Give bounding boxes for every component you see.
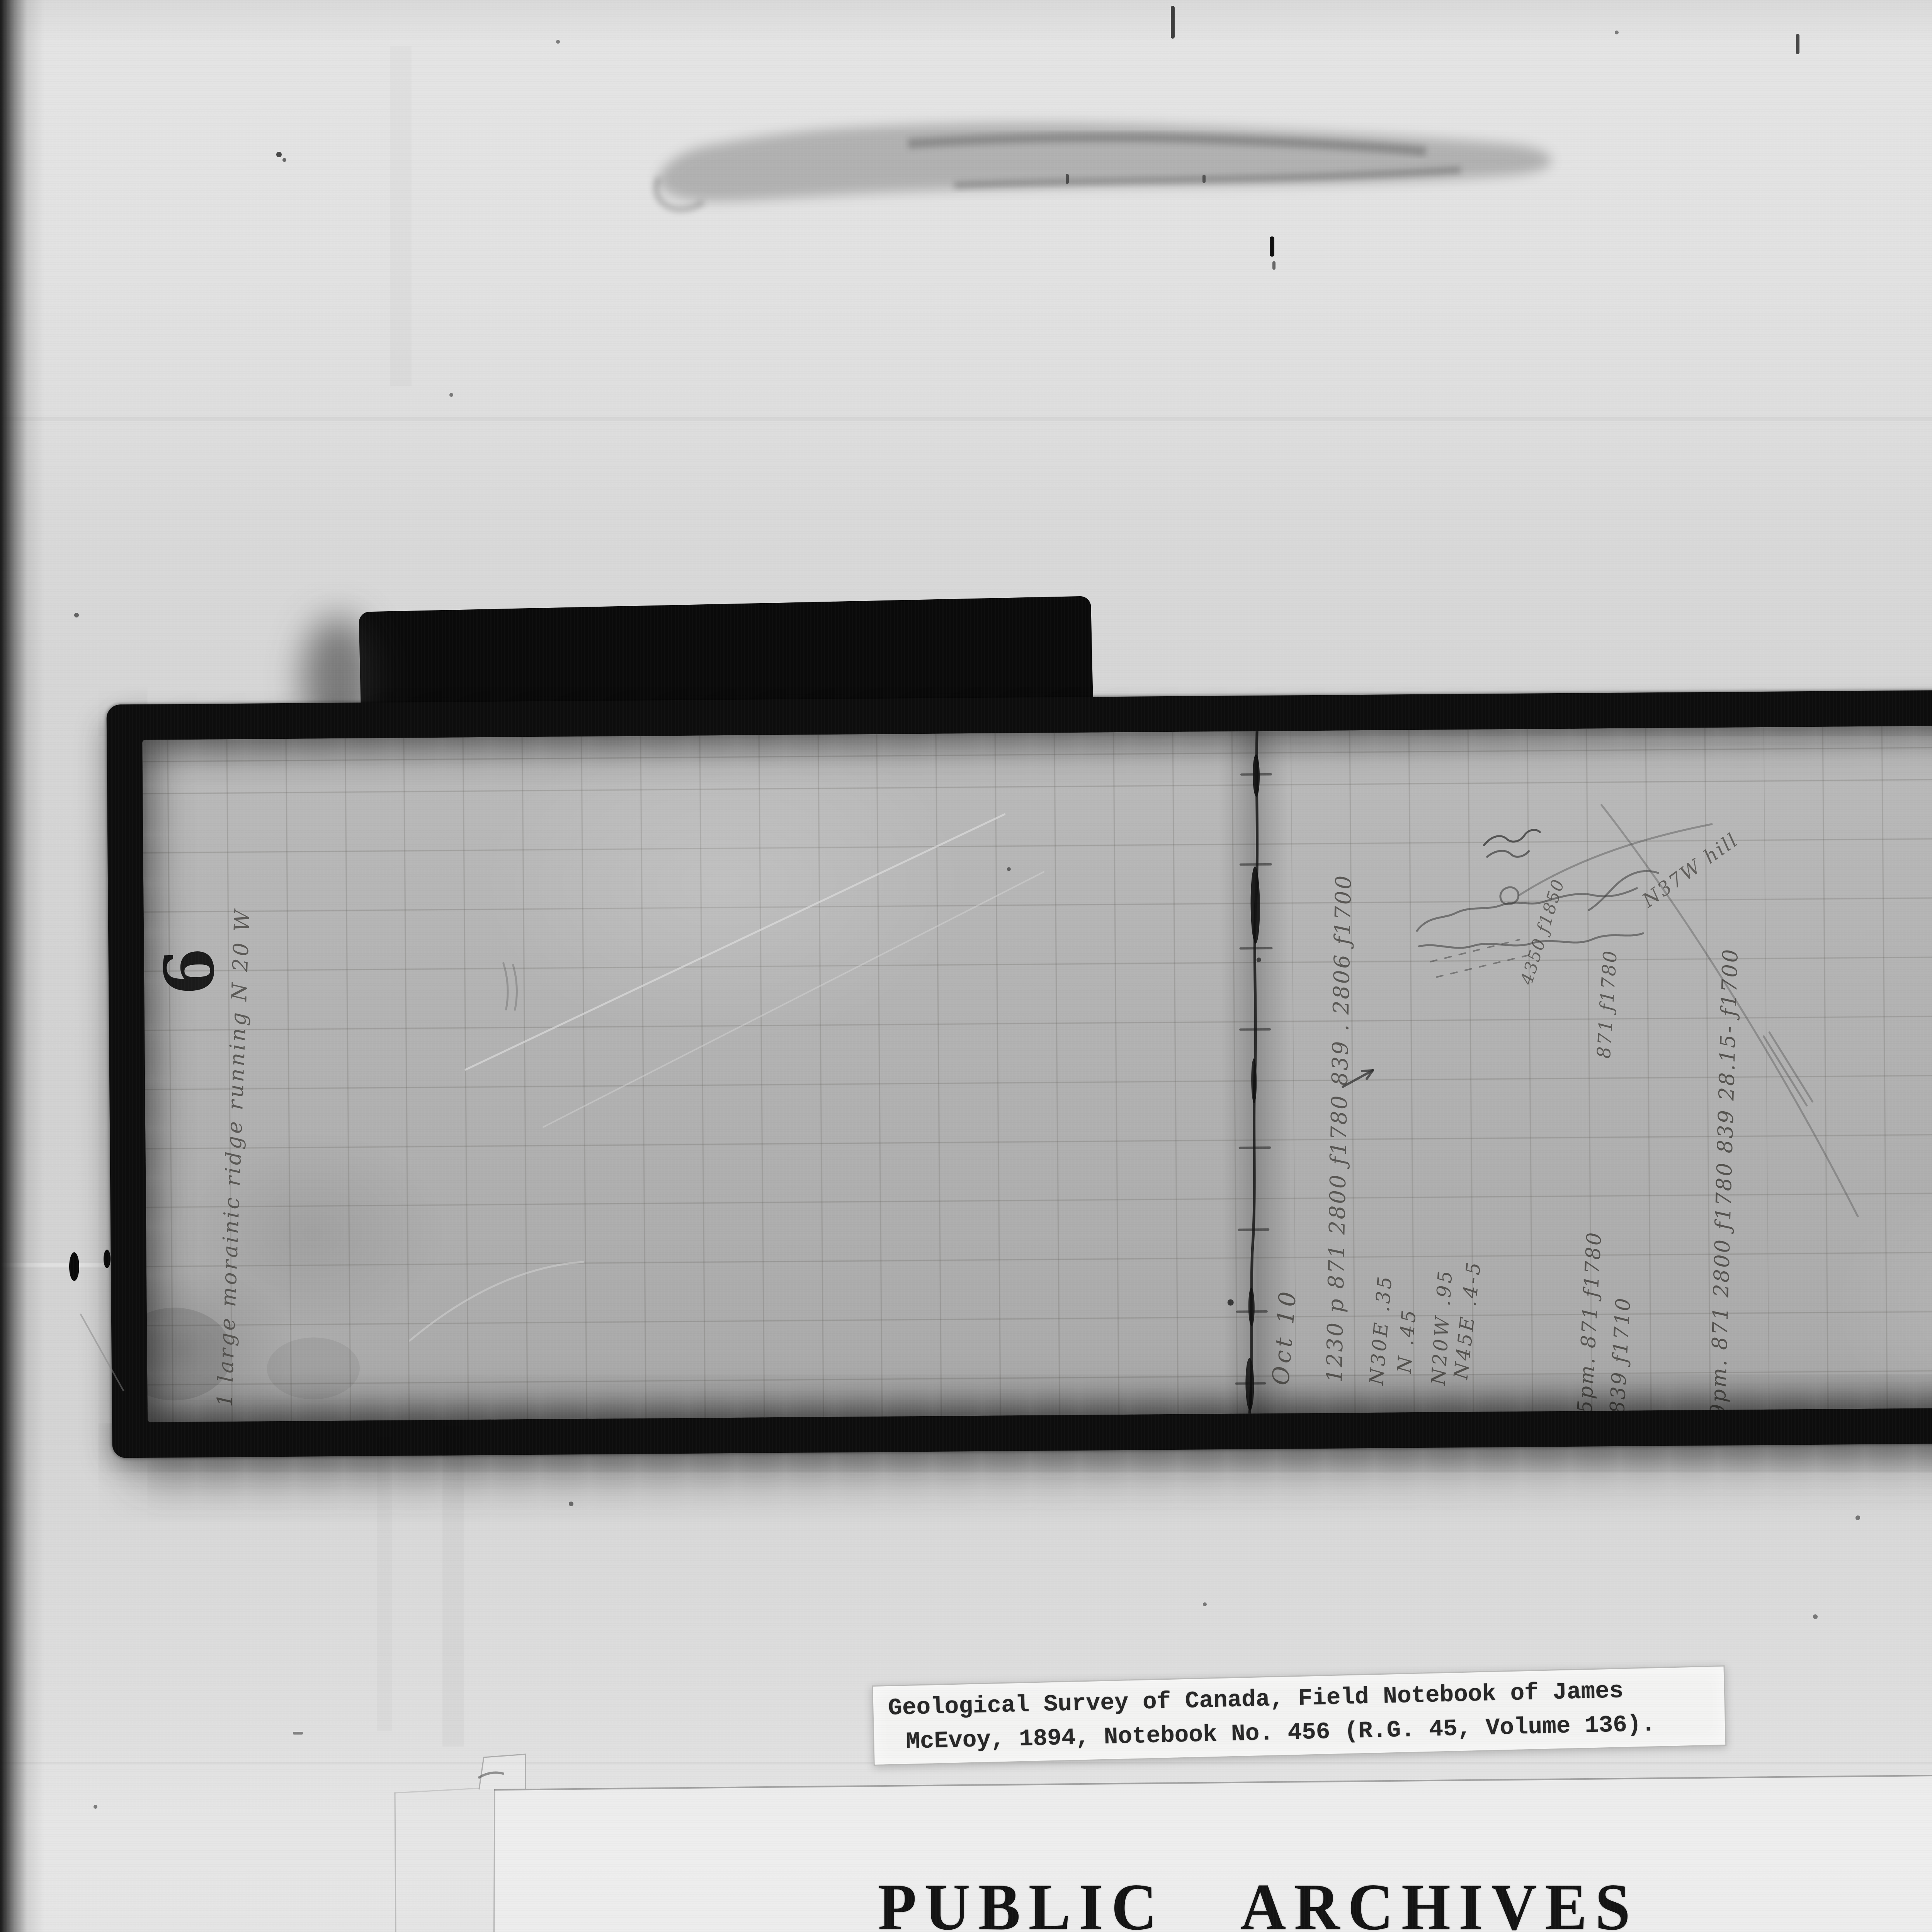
scratch-marks (405, 739, 1932, 1340)
footer-public-archives: PUBLIC ARCHIVES (878, 1869, 1638, 1932)
notebook-pages: 6 1 large morainic ridge running N 20 W … (142, 722, 1932, 1422)
gutter-stitch (1231, 731, 1276, 1414)
creek-sketch (1415, 733, 1932, 1220)
notebook-frame: 6 1 large morainic ridge running N 20 W … (106, 687, 1932, 1458)
notebook: 6 1 large morainic ridge running N 20 W … (0, 0, 1932, 1932)
archival-photograph: 6 1 large morainic ridge running N 20 W … (0, 0, 1932, 1932)
page-number: 6 (149, 946, 230, 997)
pencil-sketch-layer (142, 722, 1932, 1422)
pencil-smudge (267, 1337, 360, 1400)
